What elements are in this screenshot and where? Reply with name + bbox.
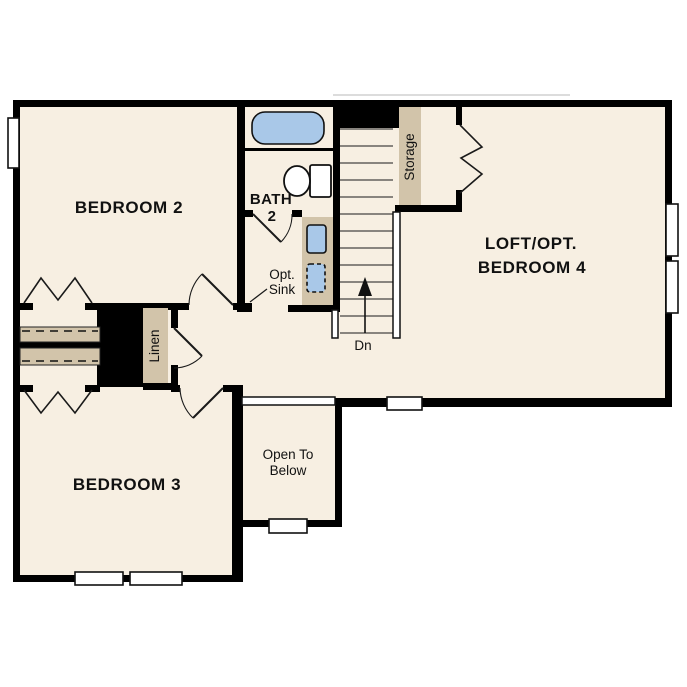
storage-label: Storage: [402, 133, 417, 180]
wall-closet-south-1: [20, 385, 33, 392]
wall-bath-west: [237, 107, 245, 310]
closet-shelf-bedroom3: [20, 348, 100, 365]
wall-bedroom3-south: [13, 575, 243, 582]
open-below-label-line2: Below: [270, 463, 307, 478]
linen-label: Linen: [147, 329, 162, 362]
bath-label-line2: 2: [268, 208, 277, 225]
floorplan-canvas: BEDROOM 2 BEDROOM 3 LOFT/OPT. BEDROOM 4 …: [0, 0, 687, 687]
loft-label-line2: BEDROOM 4: [478, 258, 586, 277]
vanity-sink: [307, 225, 326, 253]
window-bedroom3-south-2: [130, 572, 182, 585]
window-loft-east-2: [666, 261, 678, 313]
opt-sink-label-line1: Opt.: [269, 267, 295, 282]
opt-sink-label-line2: Sink: [269, 282, 296, 297]
wall-closet-south-2: [85, 385, 100, 392]
wall-bathdoor-stub-left: [245, 210, 253, 217]
wall-open-below-east: [335, 398, 342, 527]
open-below-label-line1: Open To: [263, 447, 314, 462]
window-bedroom2-west: [8, 118, 19, 168]
open-below-railing: [242, 397, 335, 405]
stair-railing-east: [393, 212, 400, 338]
wall-storage-stub-top: [456, 107, 462, 125]
window-loft-south: [387, 397, 422, 410]
wall-linen-south: [143, 383, 171, 390]
bathtub: [252, 112, 324, 144]
stairs-dn-label: Dn: [354, 338, 371, 353]
wall-bathdoor-stub-right: [292, 210, 302, 217]
toilet-tank: [310, 165, 331, 197]
wall-closet-core: [97, 303, 143, 387]
wall-loft-south: [335, 398, 672, 407]
bedroom3-label: BEDROOM 3: [73, 475, 181, 494]
wall-hall-south-2: [223, 385, 243, 392]
tub-surround-line: [245, 148, 333, 151]
wall-bedroom2-south-1: [20, 303, 33, 310]
wall-linen-stub-top: [171, 305, 178, 328]
wall-storage-south: [395, 205, 462, 212]
wall-bath-east: [333, 107, 340, 312]
wall-closet-divider: [20, 342, 100, 348]
wall-bedroom3-east: [232, 392, 243, 582]
window-loft-east-1: [666, 204, 678, 256]
optional-sink-dashed: [307, 264, 325, 292]
wall-stair-head: [333, 100, 399, 128]
closet-shelf-bedroom2: [20, 327, 100, 342]
wall-left: [13, 100, 20, 582]
wall-bedroom2-south-4: [233, 303, 245, 310]
loft-label-line1: LOFT/OPT.: [485, 234, 577, 253]
window-bedroom3-south-1: [75, 572, 123, 585]
bedroom2-label: BEDROOM 2: [75, 198, 183, 217]
floorplan-drawing: BEDROOM 2 BEDROOM 3 LOFT/OPT. BEDROOM 4 …: [0, 0, 687, 687]
roof-overhang-line: [333, 94, 570, 96]
bath-label-line1: BATH: [250, 191, 292, 208]
window-open-below-south: [269, 519, 307, 533]
stair-railing-west: [332, 310, 338, 338]
wall-hall-south-1: [171, 385, 180, 392]
